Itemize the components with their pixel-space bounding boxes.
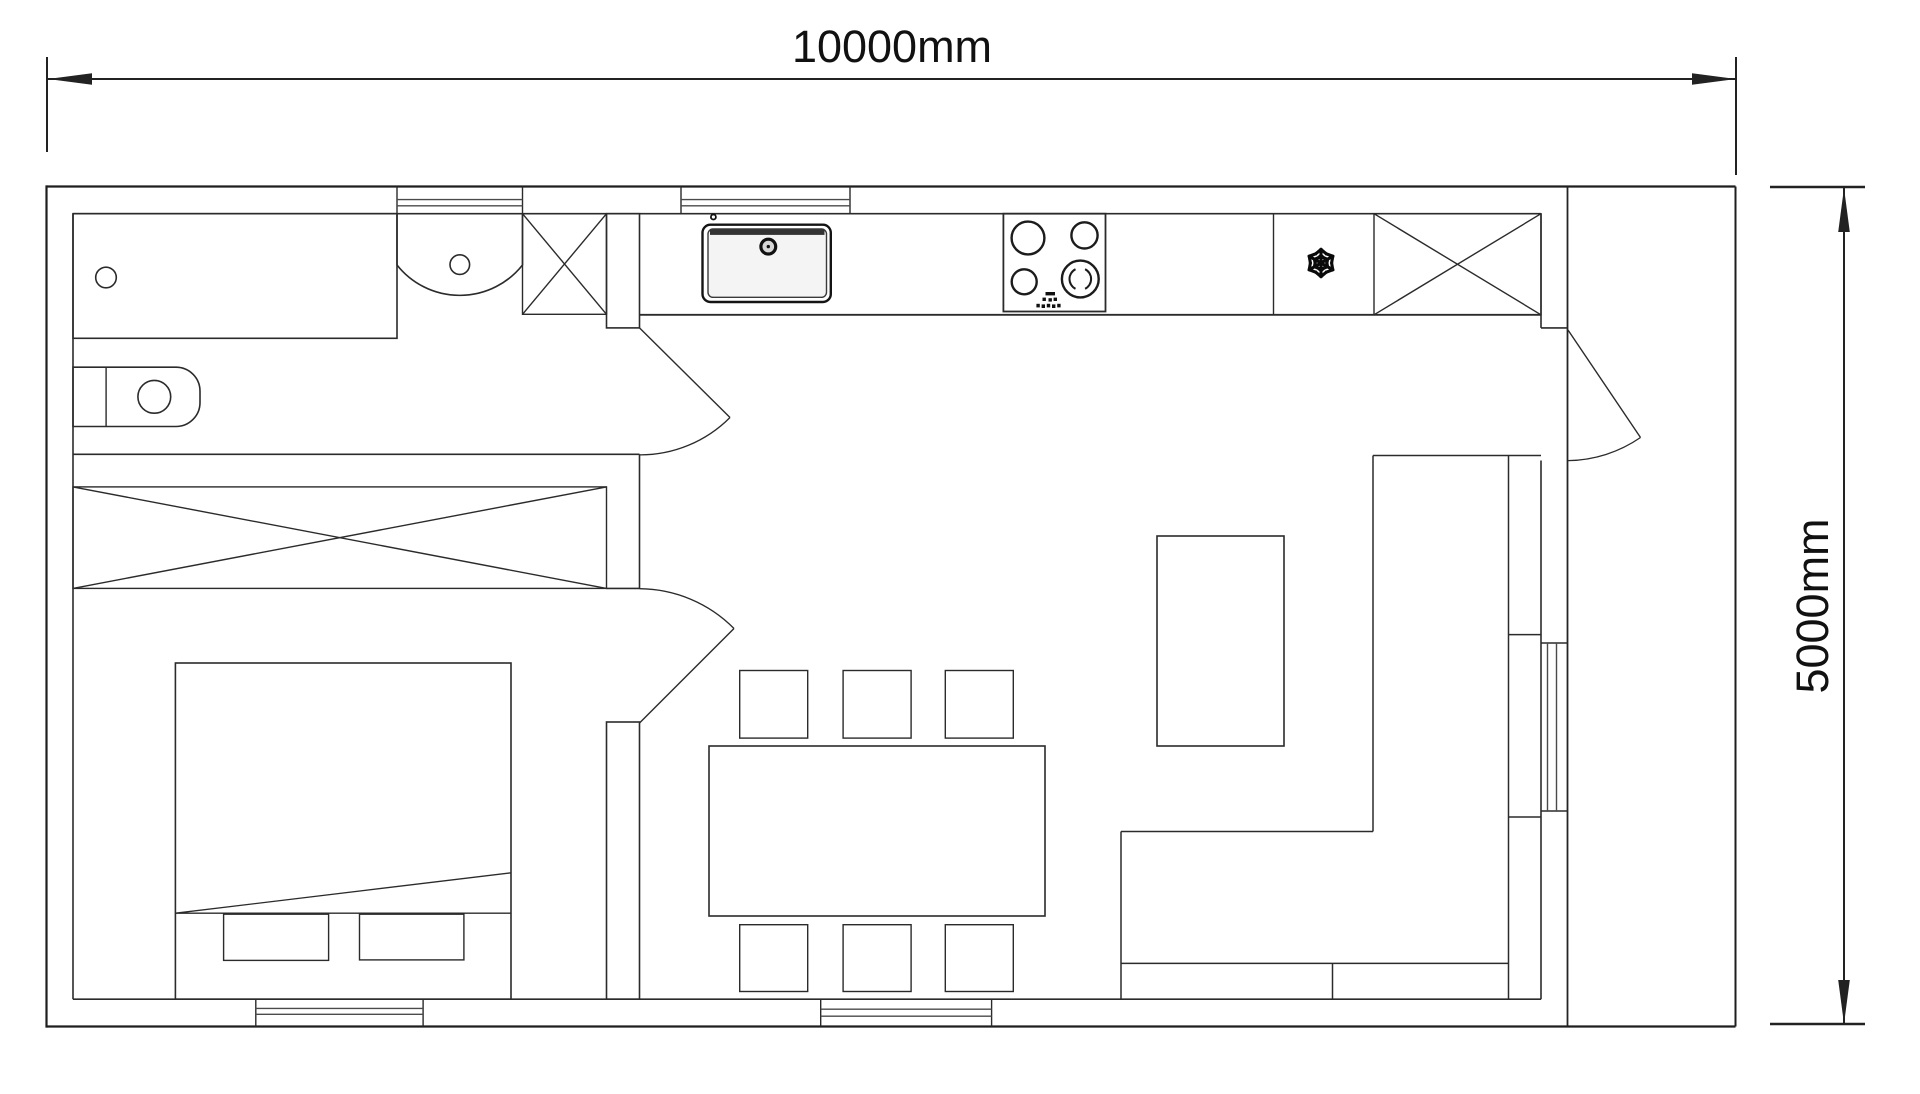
svg-text:5000mm: 5000mm: [1787, 518, 1838, 693]
svg-text:10000mm: 10000mm: [792, 21, 992, 72]
